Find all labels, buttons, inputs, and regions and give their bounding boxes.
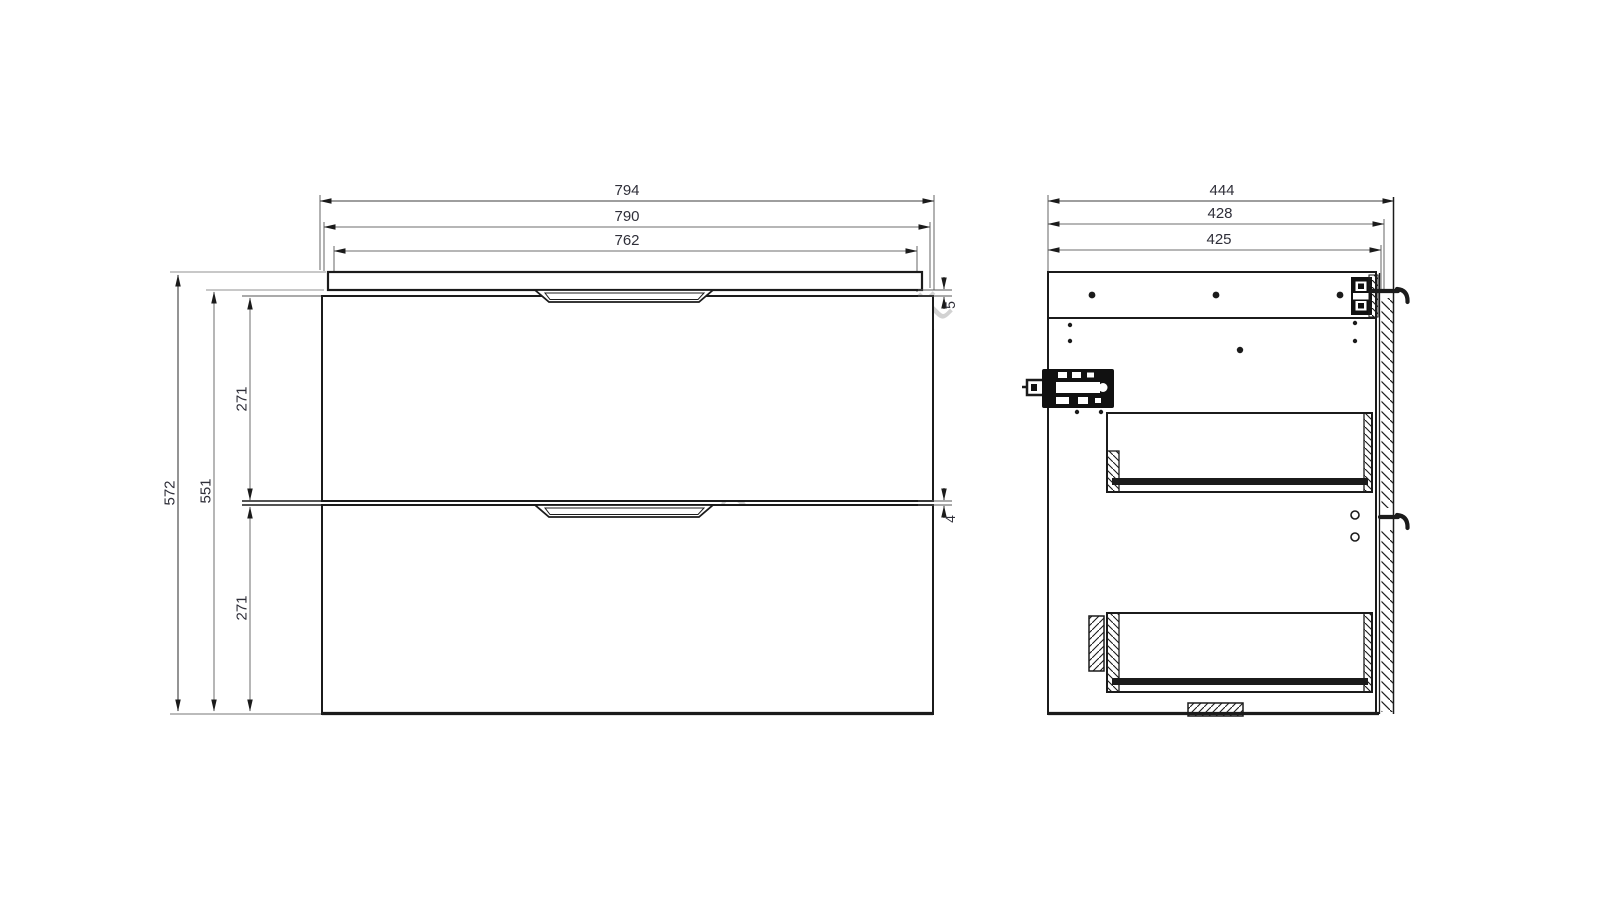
upper-drawer-box — [1107, 413, 1372, 492]
front-dim-572-label: 572 — [162, 480, 179, 505]
front-view: 794 790 762 572 551 — [162, 182, 959, 714]
front-dim-total-height: 572 — [162, 275, 179, 711]
front-dim-upper-drawer-height: 271 — [234, 298, 251, 500]
drawer-slide-mechanism — [1022, 369, 1114, 408]
side-view: 444 428 425 — [1022, 182, 1408, 716]
front-dim-790-label: 790 — [614, 208, 639, 225]
wall-section — [1380, 197, 1394, 714]
side-section-block — [1089, 616, 1104, 671]
top-panel-section-hatch — [1369, 275, 1378, 317]
technical-drawing-canvas: lempumanija.lt 794 790 762 — [0, 0, 1600, 900]
lower-drawer-box — [1089, 613, 1372, 692]
side-dim-428-label: 428 — [1207, 205, 1232, 222]
drawer-handle-bottom — [535, 505, 713, 517]
front-dim-5-label: 5 — [942, 301, 958, 309]
front-dim-4-label: 4 — [942, 515, 958, 523]
drawer-front-top — [322, 296, 933, 501]
side-dim-425-label: 425 — [1206, 231, 1231, 248]
front-dim-271-bottom-label: 271 — [234, 595, 251, 620]
drawer-front-bottom — [322, 505, 933, 714]
front-dim-794-label: 794 — [614, 182, 639, 199]
side-hole-ring-1 — [1351, 511, 1359, 519]
front-dim-271-top-label: 271 — [234, 386, 251, 411]
front-dim-body-height: 551 — [198, 292, 215, 711]
front-dim-551-label: 551 — [198, 478, 215, 503]
side-dim-444-label: 444 — [1209, 182, 1234, 199]
side-hole-ring-2 — [1351, 533, 1359, 541]
bottom-batten — [1188, 703, 1243, 716]
drawer-handle-top — [535, 290, 713, 302]
front-dim-762-label: 762 — [614, 232, 639, 249]
front-dim-lower-drawer-height: 271 — [234, 507, 251, 711]
side-dim-overall-depth: 444 — [1048, 182, 1394, 271]
countertop — [328, 272, 922, 290]
